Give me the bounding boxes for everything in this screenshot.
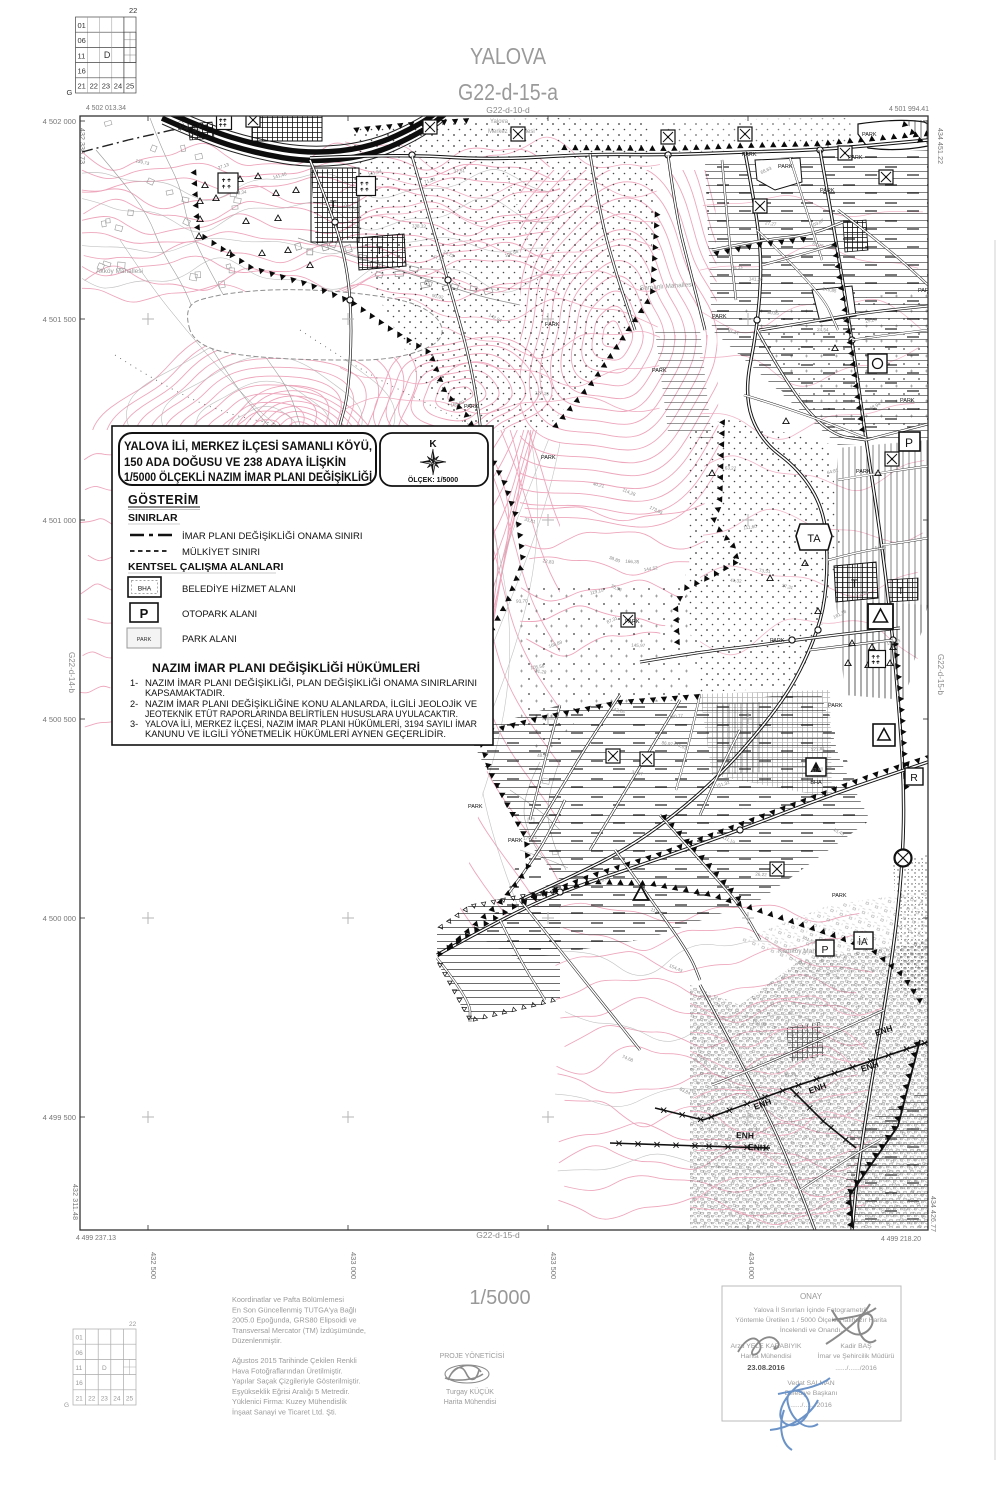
svg-text:PARK: PARK	[468, 804, 483, 810]
svg-text:TA: TA	[807, 533, 821, 545]
svg-text:23.08.2016: 23.08.2016	[747, 1363, 785, 1372]
svg-text:Harita Mühendisi: Harita Mühendisi	[741, 1353, 792, 1360]
svg-text:PROJE YÖNETİCİSİ: PROJE YÖNETİCİSİ	[440, 1351, 505, 1360]
svg-text:138,33: 138,33	[412, 223, 427, 229]
svg-text:16: 16	[76, 1380, 84, 1387]
svg-text:4 502 013.34: 4 502 013.34	[86, 105, 126, 112]
svg-text:Yalova İl Sınırları İçinde Fo: Yalova İl Sınırları İçinde Fotogrametrik	[753, 1305, 869, 1314]
svg-text:2005.0 Epoğunda, GRS80 Elipsoi: 2005.0 Epoğunda, GRS80 Elipsoidi ve	[232, 1316, 357, 1325]
svg-text:P: P	[821, 944, 828, 956]
svg-text:24: 24	[114, 82, 122, 91]
svg-text:PARK: PARK	[856, 469, 871, 475]
svg-text:NAZIM İMAR PLANI DEĞİŞİKLİĞİ H: NAZIM İMAR PLANI DEĞİŞİKLİĞİ HÜKÜMLERİ	[152, 662, 420, 675]
svg-text:OTOPARK ALANI: OTOPARK ALANI	[182, 609, 257, 620]
svg-text:NAZIM İMAR PLANI DEĞİŞİKLİĞİNE: NAZIM İMAR PLANI DEĞİŞİKLİĞİNE KONU ALAN…	[145, 699, 477, 709]
svg-text:141,20: 141,20	[749, 276, 764, 282]
svg-text:PARK: PARK	[541, 455, 556, 461]
svg-text:21: 21	[76, 1395, 84, 1402]
svg-text:G: G	[64, 1402, 69, 1409]
svg-text:01: 01	[76, 1335, 84, 1342]
svg-text:JEOTEKNİK ETÜT RAPORLARINDA BE: JEOTEKNİK ETÜT RAPORLARINDA BELİRTİLEN H…	[145, 709, 458, 719]
svg-text:G22-d-15-d: G22-d-15-d	[476, 1230, 520, 1240]
svg-text:PARK: PARK	[508, 838, 523, 844]
svg-text:BHA: BHA	[810, 780, 822, 786]
svg-text:PARK: PARK	[848, 155, 863, 161]
svg-text:PARK: PARK	[832, 893, 847, 899]
svg-text:23: 23	[101, 1395, 109, 1402]
svg-text:P: P	[140, 606, 149, 621]
svg-text:21: 21	[78, 82, 86, 91]
svg-text:İnşaat Sanayi ve Ticaret Ltd.: İnşaat Sanayi ve Ticaret Ltd. Şti.	[232, 1408, 337, 1417]
svg-text:PARK: PARK	[862, 132, 877, 138]
svg-text:4 501 994.41: 4 501 994.41	[889, 106, 929, 113]
svg-text:22: 22	[129, 6, 137, 15]
svg-text:2-: 2-	[130, 699, 138, 709]
svg-text:....../....../2016: ....../....../2016	[790, 1402, 832, 1409]
svg-text:....../....../2016: ....../....../2016	[835, 1365, 877, 1372]
svg-text:Yüklenici Firma: Kuzey Mühendi: Yüklenici Firma: Kuzey Mühendislik	[232, 1397, 347, 1406]
svg-text:150 ADA DOĞUSU VE 238 ADAYA İL: 150 ADA DOĞUSU VE 238 ADAYA İLİŞKİN	[124, 454, 346, 469]
svg-text:PARK: PARK	[770, 638, 785, 644]
svg-text:PARK: PARK	[137, 637, 152, 643]
svg-text:ONAY: ONAY	[800, 1292, 823, 1301]
svg-text:ÖLÇEK: 1/5000: ÖLÇEK: 1/5000	[408, 475, 458, 484]
svg-text:En Son Güncellenmiş TUTGA'ya B: En Son Güncellenmiş TUTGA'ya Bağlı	[232, 1305, 357, 1314]
svg-text:MÜLKİYET SINIRI: MÜLKİYET SINIRI	[182, 547, 260, 558]
svg-text:37,51: 37,51	[453, 168, 465, 174]
svg-text:432 500: 432 500	[149, 1252, 158, 1279]
svg-text:06: 06	[78, 36, 86, 45]
svg-text:22: 22	[129, 1321, 137, 1328]
svg-text:G22-d-14-b: G22-d-14-b	[67, 652, 76, 693]
svg-text:T: T	[898, 586, 904, 596]
svg-text:PARK: PARK	[778, 164, 793, 170]
svg-text:G22-d-15-b: G22-d-15-b	[936, 654, 945, 695]
svg-text:434 000: 434 000	[747, 1252, 756, 1279]
svg-text:Hava Fotoğraflarından Üretilmi: Hava Fotoğraflarından Üretilmiştir.	[232, 1366, 343, 1375]
svg-text:PARK: PARK	[820, 188, 835, 194]
svg-text:22: 22	[88, 1395, 96, 1402]
svg-text:PARK: PARK	[828, 703, 843, 709]
svg-text:Akköy Mahallesi: Akköy Mahallesi	[96, 268, 143, 275]
svg-text:434 451.22: 434 451.22	[936, 128, 943, 164]
svg-text:P: P	[905, 436, 913, 450]
svg-text:R: R	[910, 772, 918, 784]
svg-text:Transversal Mercator (TM) İzdü: Transversal Mercator (TM) İzdüşümünde,	[232, 1326, 366, 1335]
svg-text:İmar ve Şehircilik Müdürü: İmar ve Şehircilik Müdürü	[818, 1351, 895, 1360]
svg-text:Turgay KÜÇÜK: Turgay KÜÇÜK	[446, 1388, 494, 1396]
svg-text:SINIRLAR: SINIRLAR	[128, 512, 178, 524]
svg-text:166,35: 166,35	[625, 559, 640, 565]
svg-text:Yöntemle Üretilen 1 / 5000 Öl: Yöntemle Üretilen 1 / 5000 Ölçekli Halih…	[735, 1316, 887, 1324]
svg-text:4 500 000: 4 500 000	[43, 914, 76, 923]
svg-text:433 000: 433 000	[349, 1252, 358, 1279]
svg-text:PARK: PARK	[464, 404, 479, 410]
svg-text:D: D	[104, 50, 111, 60]
svg-text:1-: 1-	[130, 678, 138, 688]
svg-text:4 502 000: 4 502 000	[43, 117, 76, 126]
svg-text:G22-d-10-d: G22-d-10-d	[486, 105, 530, 115]
svg-text:İMAR PLANI DEĞİŞİKLİĞİ ONAMA S: İMAR PLANI DEĞİŞİKLİĞİ ONAMA SINIRI	[182, 531, 363, 542]
svg-text:1/5000 ÖLÇEKLİ NAZIM İMAR PLAN: 1/5000 ÖLÇEKLİ NAZIM İMAR PLANI DEĞİŞİKL…	[124, 469, 372, 484]
svg-text:80,95: 80,95	[767, 310, 779, 316]
svg-text:25: 25	[126, 82, 134, 91]
svg-text:23: 23	[102, 82, 110, 91]
svg-text:11: 11	[76, 1365, 83, 1372]
svg-text:PARK: PARK	[545, 322, 560, 328]
svg-text:PARK ALANI: PARK ALANI	[182, 634, 237, 645]
svg-text:434 426.77: 434 426.77	[929, 1196, 936, 1232]
svg-text:PARK: PARK	[900, 398, 915, 404]
svg-text:T: T	[330, 199, 337, 211]
svg-text:145,97: 145,97	[631, 643, 646, 648]
svg-text:GÖSTERİM: GÖSTERİM	[128, 492, 199, 507]
svg-text:G22-d-15-a: G22-d-15-a	[458, 79, 558, 105]
svg-text:YALOVA: YALOVA	[470, 43, 547, 69]
svg-text:G: G	[67, 88, 73, 97]
svg-text:Kadir BAŞ: Kadir BAŞ	[840, 1343, 872, 1350]
svg-text:4 499 237.13: 4 499 237.13	[76, 1235, 116, 1242]
svg-text:KANUNU VE İLGİLİ YÖNETMELİK HÜ: KANUNU VE İLGİLİ YÖNETMELİK HÜKÜMLERİ AY…	[145, 729, 446, 739]
svg-text:PARK: PARK	[742, 152, 757, 158]
svg-text:PARK: PARK	[712, 314, 727, 320]
svg-text:BELEDİYE HİZMET ALANI: BELEDİYE HİZMET ALANI	[182, 584, 296, 595]
svg-text:16: 16	[78, 67, 86, 76]
svg-text:11: 11	[78, 51, 86, 60]
svg-text:432 336.73: 432 336.73	[78, 128, 85, 164]
svg-text:4 499 218.20: 4 499 218.20	[881, 1236, 921, 1243]
svg-text:KAPSAMAKTADIR.: KAPSAMAKTADIR.	[145, 688, 225, 698]
svg-text:PARK: PARK	[625, 619, 640, 625]
svg-text:26,22: 26,22	[755, 872, 767, 878]
svg-text:D: D	[102, 1365, 107, 1372]
svg-text:Ağustos 2015 Tarihinde Çekilen: Ağustos 2015 Tarihinde Çekilen Renkli	[232, 1356, 357, 1365]
svg-text:25: 25	[126, 1395, 134, 1402]
svg-text:BHA: BHA	[138, 586, 152, 593]
svg-text:İncelendi ve Onandı.: İncelendi ve Onandı.	[780, 1325, 842, 1334]
svg-text:Koordinatlar ve Pafta Bölümlem: Koordinatlar ve Pafta Bölümlemesi	[232, 1295, 344, 1304]
svg-text:Eşyükseklik Eğrisi Aralığı 5 M: Eşyükseklik Eğrisi Aralığı 5 Metredir.	[232, 1387, 350, 1396]
svg-text:54,32: 54,32	[874, 545, 886, 551]
svg-text:Düzenlenmiştir.: Düzenlenmiştir.	[232, 1336, 282, 1345]
svg-text:63,22: 63,22	[725, 466, 737, 471]
svg-text:432 311.48: 432 311.48	[71, 1184, 78, 1220]
svg-text:3-: 3-	[130, 719, 138, 729]
svg-text:01: 01	[78, 21, 86, 30]
svg-text:Harita Mühendisi: Harita Mühendisi	[444, 1399, 497, 1406]
svg-text:4 500 500: 4 500 500	[43, 715, 76, 724]
svg-text:4 501 000: 4 501 000	[43, 516, 76, 525]
svg-text:Yapılar Saçak Çizgileriyle Gös: Yapılar Saçak Çizgileriyle Gösterilmişti…	[232, 1377, 360, 1386]
svg-text:4 501 500: 4 501 500	[43, 315, 76, 324]
svg-text:1/5000: 1/5000	[469, 1287, 530, 1309]
svg-text:T: T	[376, 245, 383, 257]
svg-text:NAZIM İMAR PLANI DEĞİŞİKLİĞİ,: NAZIM İMAR PLANI DEĞİŞİKLİĞİ, PLAN DEĞİŞ…	[145, 678, 477, 688]
svg-text:ENH: ENH	[748, 1142, 766, 1153]
svg-text:4 499 500: 4 499 500	[43, 1113, 76, 1122]
svg-text:93,70: 93,70	[516, 598, 528, 603]
svg-text:YALOVA İLİ, MERKEZ İLÇESİ, NAZ: YALOVA İLİ, MERKEZ İLÇESİ, NAZIM İMAR PL…	[145, 719, 477, 729]
svg-text:57,29: 57,29	[785, 1072, 797, 1077]
svg-text:22: 22	[90, 82, 98, 91]
svg-text:24,54: 24,54	[817, 327, 829, 332]
svg-text:24: 24	[113, 1395, 121, 1402]
svg-text:K: K	[429, 439, 437, 450]
svg-text:T: T	[851, 578, 858, 590]
svg-text:YALOVA İLİ, MERKEZ İLÇESİ SAMA: YALOVA İLİ, MERKEZ İLÇESİ SAMANLI KÖYÜ,	[124, 438, 372, 453]
svg-text:06: 06	[76, 1350, 84, 1357]
svg-text:433 500: 433 500	[549, 1252, 558, 1279]
svg-text:PARK: PARK	[652, 368, 667, 374]
svg-text:KENTSEL ÇALIŞMA ALANLARI: KENTSEL ÇALIŞMA ALANLARI	[128, 561, 283, 573]
